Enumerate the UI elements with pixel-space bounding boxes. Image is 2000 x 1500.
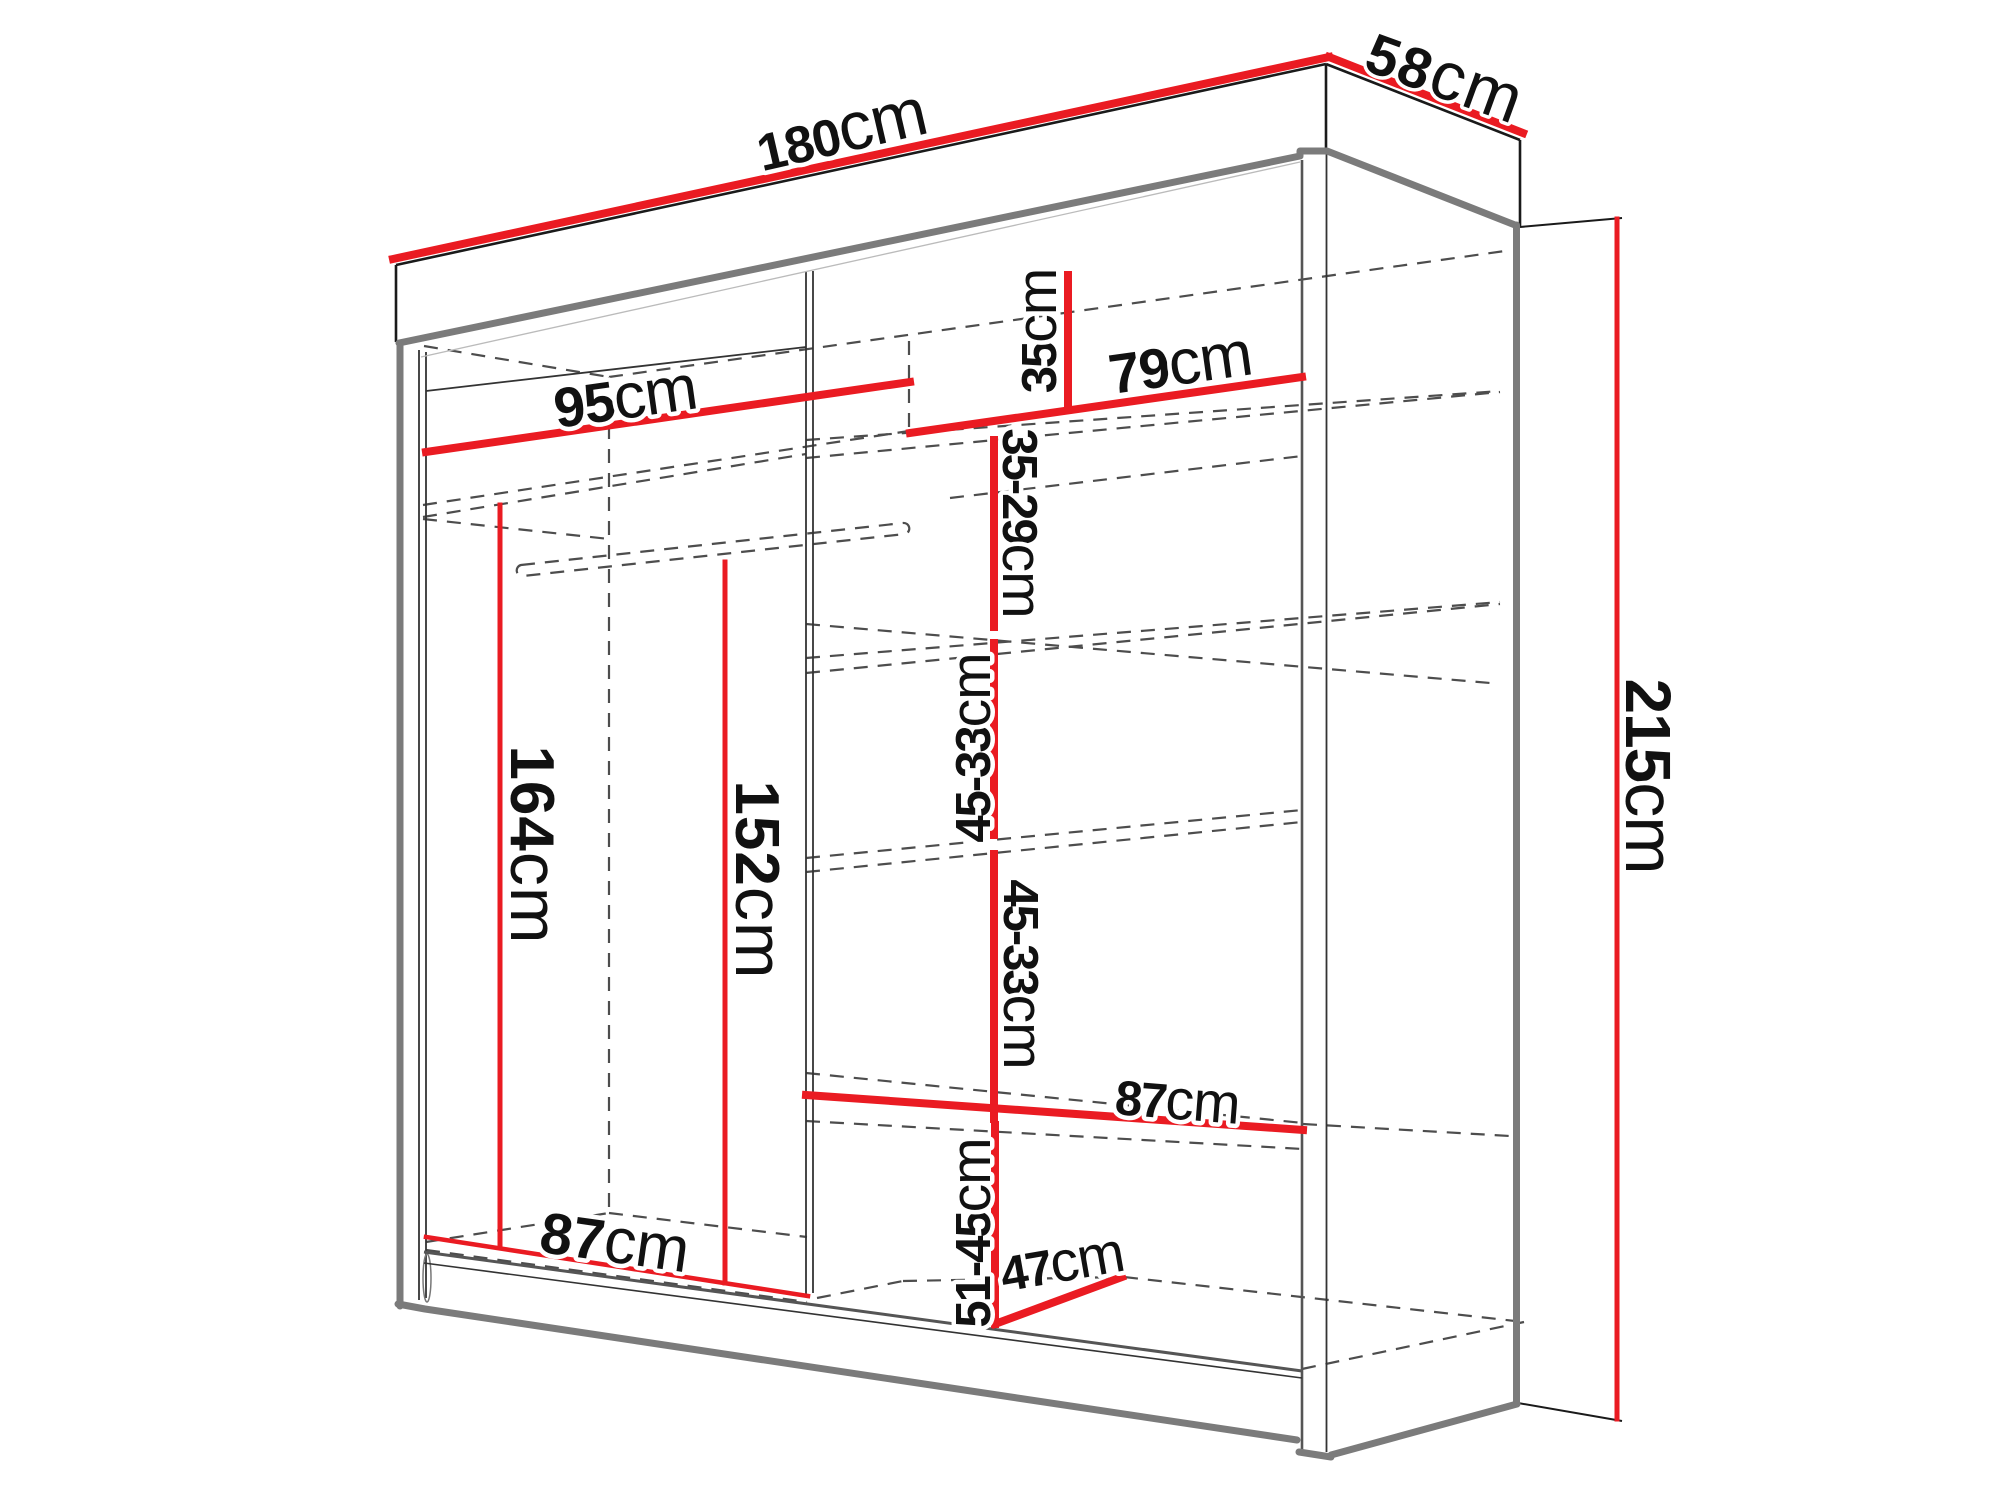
svg-text:35-29cm: 35-29cm [990, 428, 1054, 617]
svg-text:35cm: 35cm [1005, 269, 1069, 394]
svg-text:87cm: 87cm [1113, 1063, 1242, 1137]
svg-text:51-45cm: 51-45cm [939, 1138, 1003, 1327]
svg-text:45-33cm: 45-33cm [939, 653, 1003, 842]
svg-text:215cm: 215cm [1611, 678, 1689, 873]
svg-text:164cm: 164cm [496, 745, 572, 944]
svg-text:152cm: 152cm [721, 780, 797, 979]
svg-text:45-33cm: 45-33cm [991, 879, 1055, 1068]
